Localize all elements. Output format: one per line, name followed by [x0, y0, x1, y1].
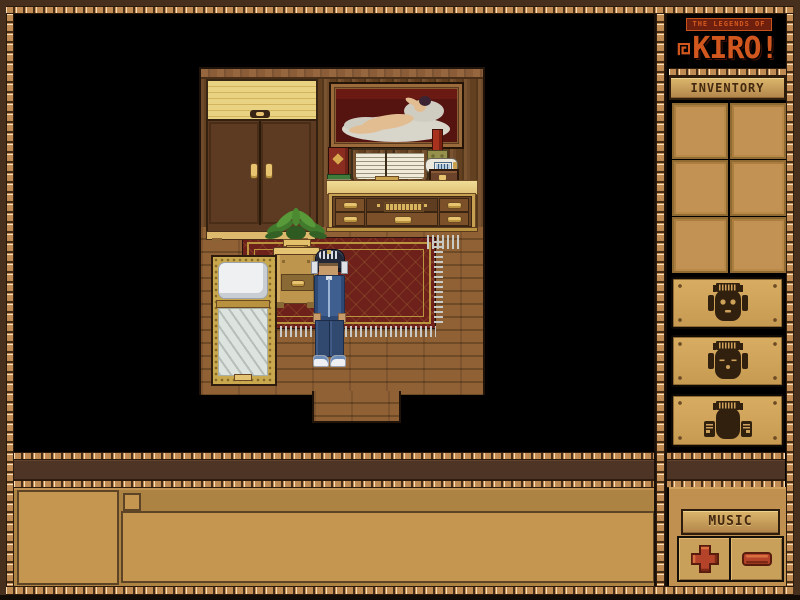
desk-inlay-panel: [366, 198, 438, 212]
inventory-grid: [669, 100, 786, 276]
rug-fringe-right: [434, 241, 443, 325]
logo-title: KIRO!: [692, 32, 777, 66]
bed-sheet: [218, 308, 268, 376]
music-volume-up-button[interactable]: [677, 536, 733, 582]
frame-rope-top: [6, 6, 794, 14]
desk-drawer-wide: [366, 212, 438, 226]
logo-panel: THE LEGENDS OF KIRO!: [669, 14, 786, 68]
zipper: [328, 279, 330, 317]
emote-button-group: [669, 276, 786, 448]
sneaker-right: [330, 355, 346, 367]
wardrobe-foot: [212, 238, 222, 242]
chat-panel: [14, 488, 656, 586]
red-book[interactable]: [328, 147, 349, 176]
sidebar-rope-divider: [669, 68, 786, 76]
frame-rope-right: [786, 14, 794, 586]
bed-foot-plate: [234, 374, 252, 381]
tribal-mask-eyes-closed-icon: [704, 340, 752, 382]
desk-drawer: [439, 212, 469, 226]
emote-button-mask-eyes-closed[interactable]: [671, 335, 784, 387]
desk-base: [326, 227, 478, 232]
bed-frame-bar: [216, 300, 270, 308]
helmet-ear-left: [311, 261, 318, 274]
chat-checkbox[interactable]: [123, 493, 141, 511]
pants-left-leg: [315, 320, 330, 357]
wardrobe-handle-right: [265, 163, 273, 179]
open-book[interactable]: [351, 148, 421, 182]
nightstand-foot: [276, 302, 284, 308]
inventory-header: INVENTORY: [669, 76, 786, 100]
music-label: MUSIC: [681, 509, 780, 535]
book-emblem: [332, 153, 343, 164]
desk-drawer: [335, 198, 365, 212]
divider-rope: [656, 14, 665, 586]
desk-inlay-bar: [384, 202, 424, 212]
music-volume-down-button[interactable]: [729, 536, 784, 582]
fern-leaves-icon: [264, 207, 328, 243]
chat-input[interactable]: [121, 511, 655, 583]
plus-icon: [691, 545, 719, 573]
wall-top-trim: [201, 69, 483, 79]
desk-front: [332, 196, 472, 227]
doorway[interactable]: [312, 391, 401, 423]
nightstand-dot: [282, 260, 285, 263]
emote-button-mask-eyes-open[interactable]: [671, 277, 784, 329]
sneaker-left: [313, 355, 329, 367]
tribal-mask-eyes-open-icon: [704, 282, 752, 324]
spiral-glyph-icon: [677, 43, 690, 56]
game-viewport[interactable]: [14, 14, 656, 452]
game-window: THE LEGENDS OF KIRO! INVENTORY: [0, 0, 800, 600]
desk-body: [328, 193, 476, 229]
framed-painting[interactable]: [329, 82, 464, 149]
inventory-slot-6[interactable]: [730, 217, 786, 273]
wardrobe-latch-knob: [256, 112, 264, 116]
avatar-box: [17, 490, 119, 585]
logo-tagline: THE LEGENDS OF: [686, 18, 772, 31]
frame-right: [794, 0, 800, 600]
pants-right-leg: [329, 320, 344, 357]
sidebar: THE LEGENDS OF KIRO! INVENTORY: [669, 14, 786, 586]
inventory-slot-1[interactable]: [672, 103, 728, 159]
helmet-ear-right: [341, 261, 348, 274]
wardrobe-latch: [250, 110, 270, 118]
desk-inlay-dot: [377, 204, 380, 207]
bed[interactable]: [211, 255, 277, 386]
room: [199, 67, 485, 395]
minus-icon: [742, 552, 772, 566]
frame-rope-left: [6, 14, 14, 586]
inventory-slot-4[interactable]: [730, 160, 786, 216]
dresser-desk[interactable]: [326, 180, 476, 230]
rug-fringe-corner: [427, 235, 461, 249]
desk-drawer: [335, 212, 365, 226]
inventory-slot-5[interactable]: [672, 217, 728, 273]
helmet-badge: [327, 250, 331, 254]
player-character[interactable]: [310, 249, 347, 368]
frame-rope-bottom: [6, 586, 794, 595]
emote-button-mask-fists[interactable]: [671, 394, 784, 447]
face: [319, 263, 338, 275]
wardrobe-handle-left: [250, 163, 258, 179]
frame-bottom-edge: [0, 595, 800, 600]
desk-drawer: [439, 198, 469, 212]
bottle-cork: [453, 162, 457, 169]
music-panel: MUSIC: [669, 487, 786, 586]
tribal-mask-fists-icon: [704, 400, 752, 442]
desk-inlay-dot: [424, 204, 427, 207]
bed-pillow: [218, 262, 268, 299]
wardrobe-door-split: [259, 121, 261, 225]
inventory-slot-3[interactable]: [672, 160, 728, 216]
inventory-slot-2[interactable]: [730, 103, 786, 159]
